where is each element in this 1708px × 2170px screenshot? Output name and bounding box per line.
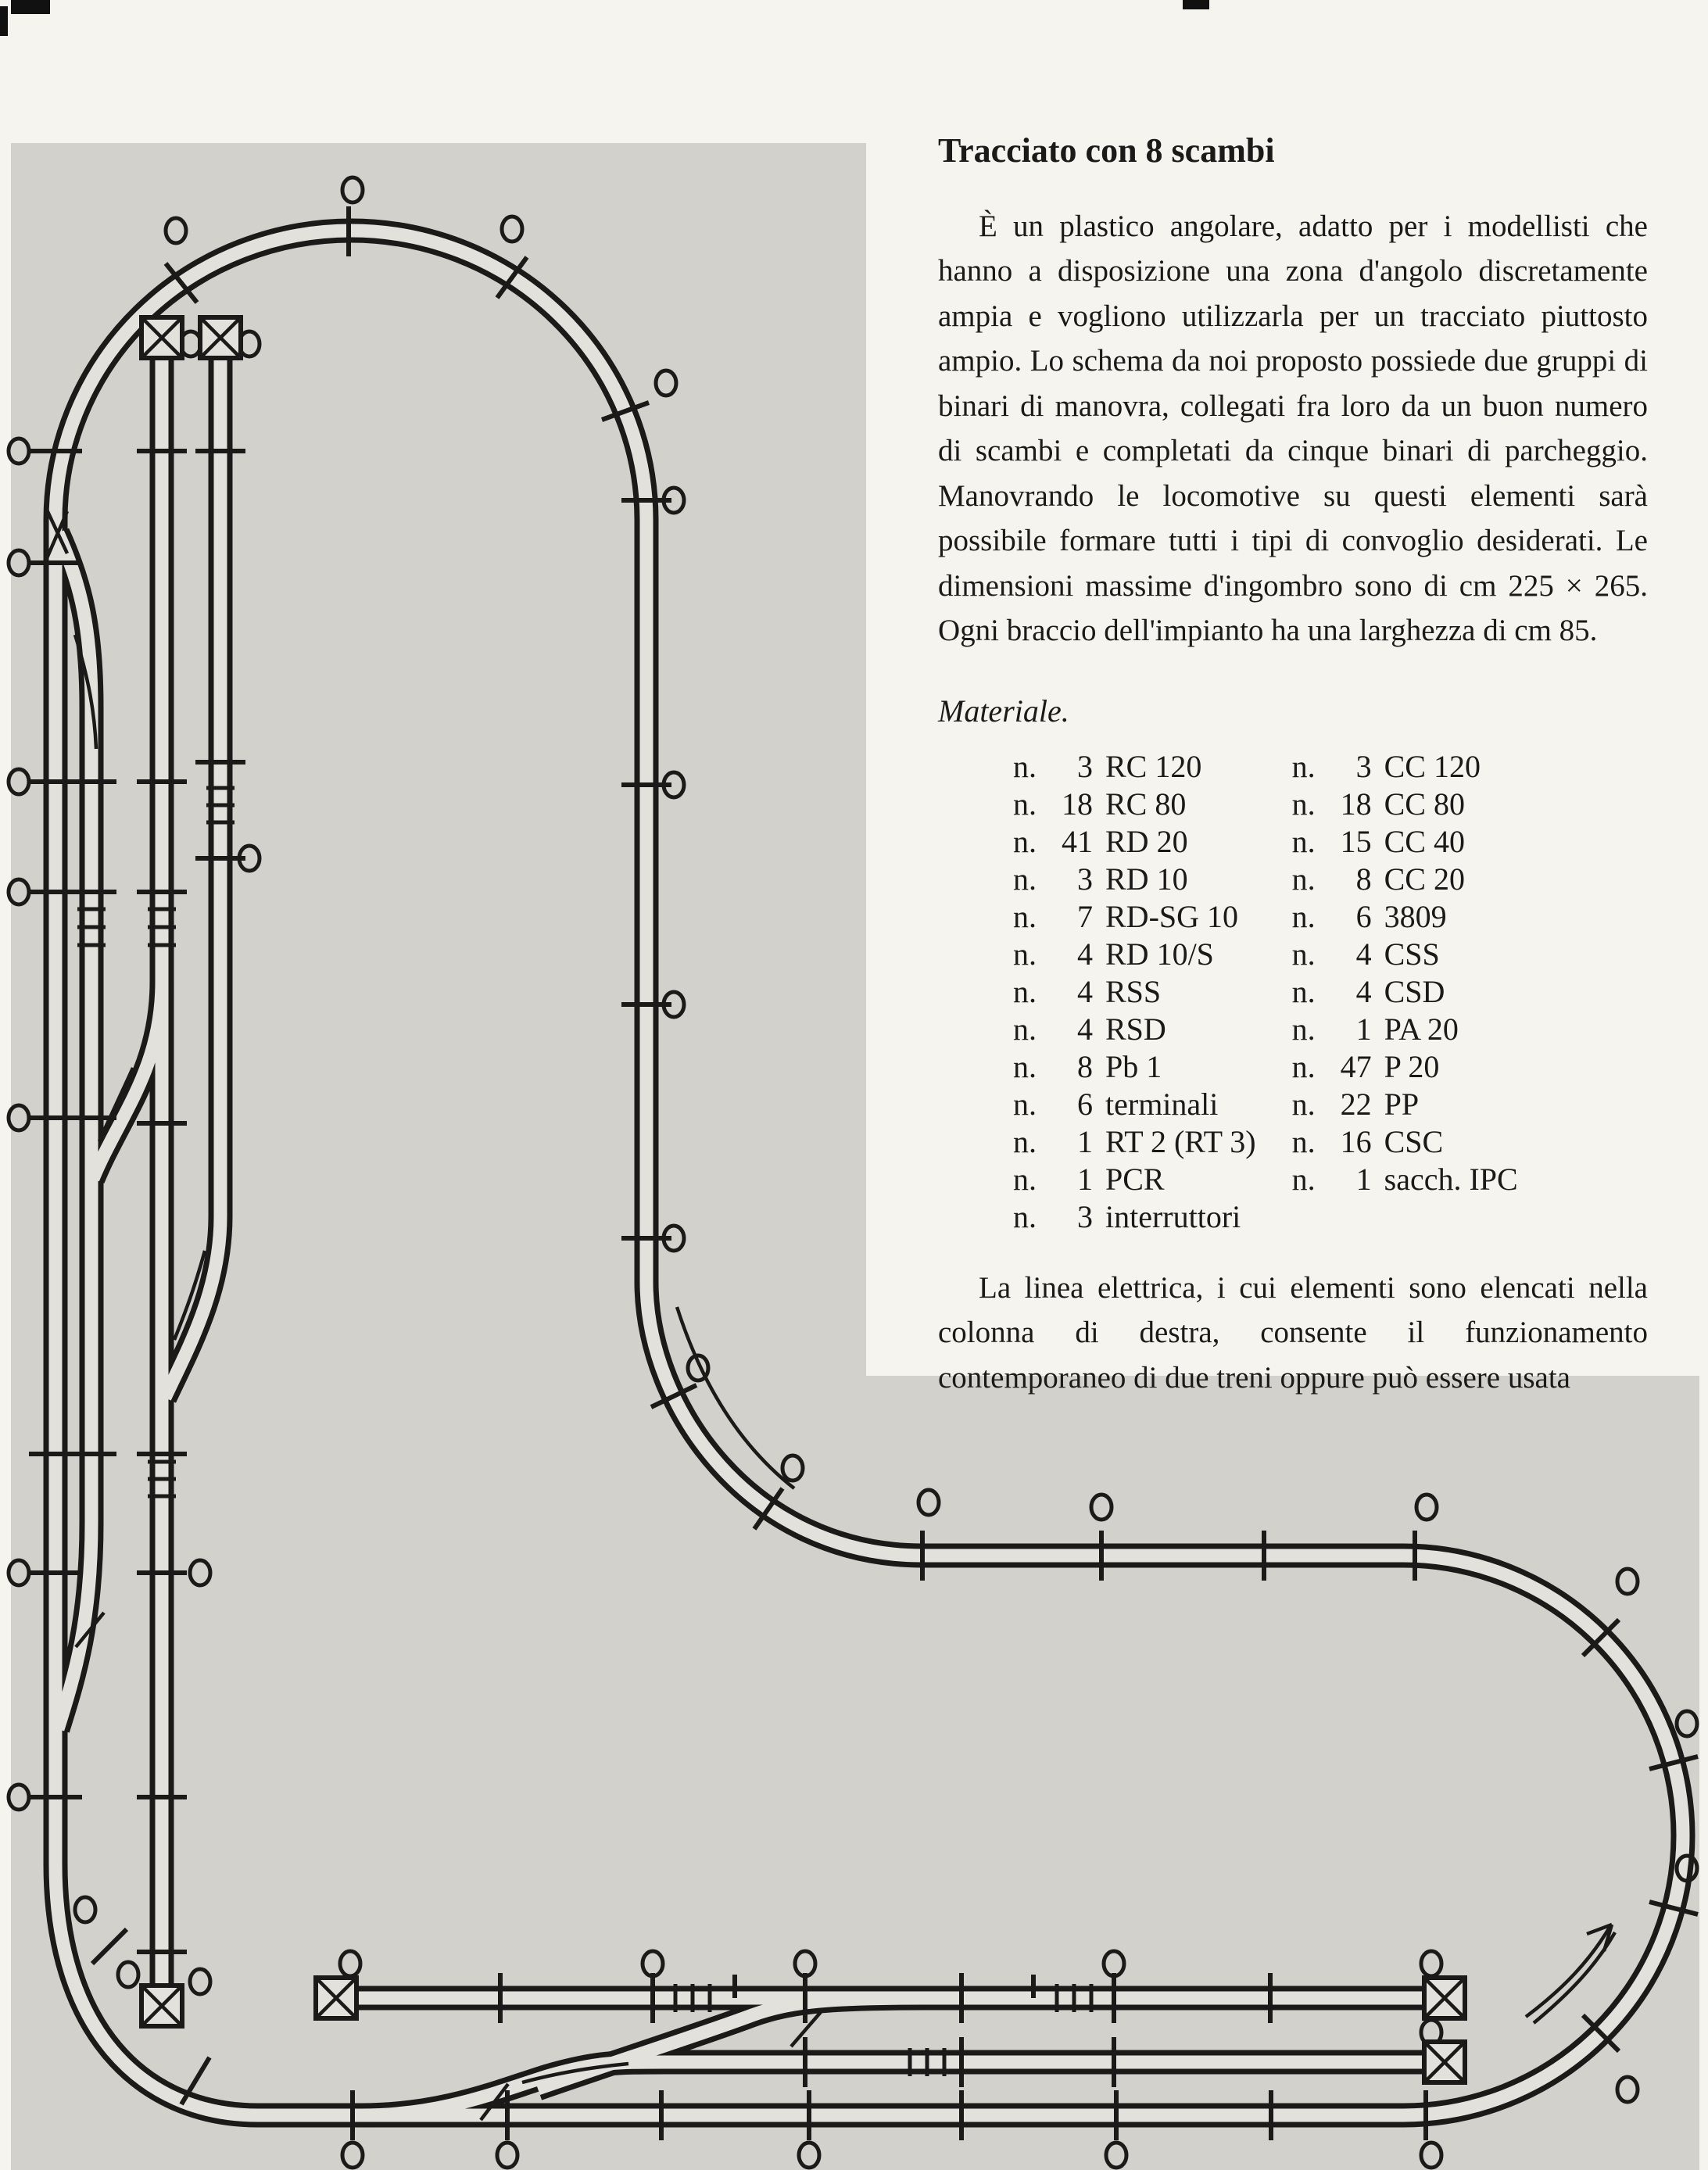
material-item: n.4CSD	[1292, 973, 1518, 1011]
buffer-stop-icon	[141, 317, 182, 358]
material-item: n.4CSS	[1292, 936, 1518, 973]
page-title: Tracciato con 8 scambi	[938, 131, 1648, 171]
material-item: n.16CSC	[1292, 1123, 1518, 1161]
material-item: n.1PCR	[1013, 1161, 1256, 1198]
page-corner-marks	[0, 0, 1209, 36]
material-item: n.7RD-SG 10	[1013, 898, 1256, 936]
material-item: n.1sacch. IPC	[1292, 1161, 1518, 1198]
material-item: n.18CC 80	[1292, 786, 1518, 823]
material-item: n.41RD 20	[1013, 823, 1256, 861]
material-item: n.4RD 10/S	[1013, 936, 1256, 973]
material-item: n.3RD 10	[1013, 861, 1256, 898]
materials-left-column: n.3RC 120 n.18RC 80 n.41RD 20 n.3RD 10 n…	[1013, 748, 1256, 1236]
material-item: n.1RT 2 (RT 3)	[1013, 1123, 1256, 1161]
material-item: n.1PA 20	[1292, 1011, 1518, 1048]
book-page: Tracciato con 8 scambi È un plastico ang…	[0, 0, 1708, 2170]
material-item: n.4RSS	[1013, 973, 1256, 1011]
buffer-stop-icon	[316, 1978, 356, 2018]
material-item: n.8Pb 1	[1013, 1048, 1256, 1086]
material-item: n.15CC 40	[1292, 823, 1518, 861]
material-item: n.3RC 120	[1013, 748, 1256, 786]
material-item: n.4RSD	[1013, 1011, 1256, 1048]
article-column: Tracciato con 8 scambi È un plastico ang…	[938, 131, 1648, 1400]
material-item: n.22PP	[1292, 1086, 1518, 1123]
buffer-stop-icon	[200, 317, 241, 358]
material-item: n.63809	[1292, 898, 1518, 936]
materials-right-column: n.3CC 120 n.18CC 80 n.15CC 40 n.8CC 20 n…	[1292, 748, 1518, 1236]
buffer-stop-icon	[1424, 1978, 1465, 2018]
intro-paragraph: È un plastico angolare, adatto per i mod…	[938, 204, 1648, 654]
material-item: n.3CC 120	[1292, 748, 1518, 786]
buffer-stop-icon	[141, 1986, 182, 2026]
material-item: n.3interruttori	[1013, 1198, 1256, 1236]
materials-heading: Materiale.	[938, 693, 1648, 729]
buffer-stop-icon	[1424, 2042, 1465, 2082]
material-item: n.6terminali	[1013, 1086, 1256, 1123]
materials-list: n.3RC 120 n.18RC 80 n.41RD 20 n.3RD 10 n…	[938, 748, 1648, 1236]
closing-paragraph: La linea elettrica, i cui elementi sono …	[938, 1266, 1648, 1401]
material-item: n.8CC 20	[1292, 861, 1518, 898]
material-item: n.18RC 80	[1013, 786, 1256, 823]
material-item: n.47P 20	[1292, 1048, 1518, 1086]
